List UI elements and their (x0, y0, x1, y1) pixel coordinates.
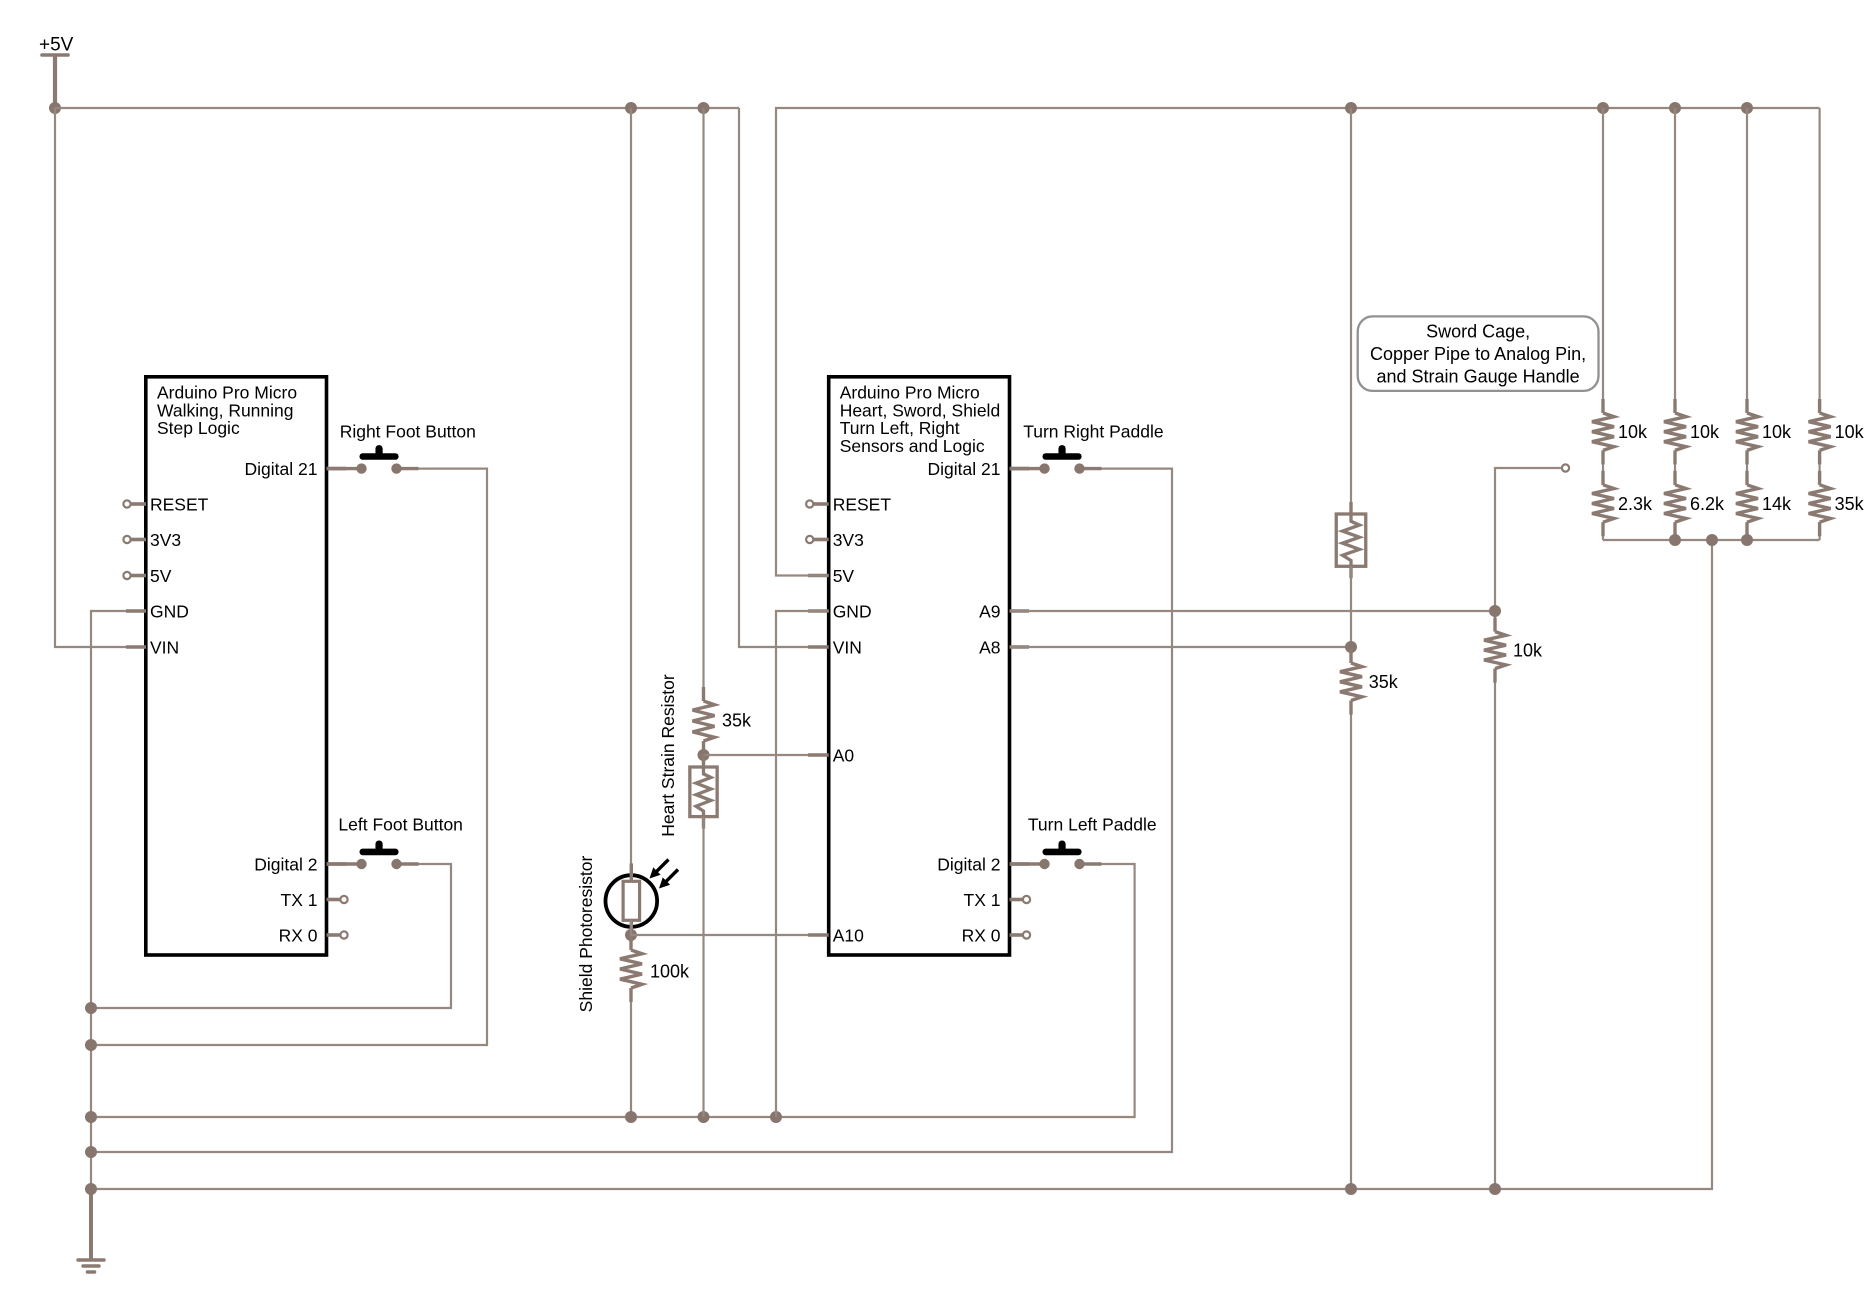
svg-text:RX 0: RX 0 (279, 925, 318, 945)
svg-text:Copper Pipe to Analog Pin,: Copper Pipe to Analog Pin, (1370, 344, 1586, 364)
svg-text:3V3: 3V3 (150, 530, 181, 550)
svg-text:A0: A0 (833, 745, 855, 765)
svg-text:5V: 5V (833, 566, 855, 586)
svg-text:35k: 35k (1369, 672, 1399, 692)
svg-text:+5V: +5V (39, 35, 74, 56)
svg-text:A8: A8 (979, 637, 1000, 657)
svg-text:and Strain Gauge Handle: and Strain Gauge Handle (1377, 366, 1580, 386)
svg-text:10k: 10k (1835, 422, 1865, 442)
svg-text:A10: A10 (833, 925, 864, 945)
svg-text:Heart Strain Resistor: Heart Strain Resistor (658, 674, 678, 837)
svg-text:Digital 2: Digital 2 (937, 854, 1000, 874)
svg-text:RESET: RESET (150, 494, 209, 514)
svg-text:Left Foot Button: Left Foot Button (338, 814, 463, 834)
svg-text:VIN: VIN (150, 637, 179, 657)
svg-text:10k: 10k (1513, 640, 1543, 660)
svg-text:RESET: RESET (833, 494, 892, 514)
svg-text:Sensors and Logic: Sensors and Logic (840, 436, 985, 456)
svg-text:RX 0: RX 0 (962, 925, 1001, 945)
svg-text:GND: GND (833, 601, 872, 621)
svg-text:GND: GND (150, 601, 189, 621)
svg-text:100k: 100k (650, 961, 690, 981)
svg-text:10k: 10k (1762, 422, 1792, 442)
svg-text:Shield Photoresistor: Shield Photoresistor (576, 856, 596, 1013)
svg-text:Digital 21: Digital 21 (245, 459, 318, 479)
svg-text:VIN: VIN (833, 637, 862, 657)
svg-text:Step Logic: Step Logic (157, 418, 240, 438)
svg-text:Turn Right Paddle: Turn Right Paddle (1023, 421, 1163, 441)
svg-text:A9: A9 (979, 601, 1000, 621)
svg-text:Digital 2: Digital 2 (254, 854, 317, 874)
svg-text:TX 1: TX 1 (964, 890, 1001, 910)
svg-text:Sword Cage,: Sword Cage, (1426, 322, 1530, 342)
svg-text:14k: 14k (1762, 494, 1792, 514)
svg-text:TX 1: TX 1 (281, 890, 318, 910)
svg-text:35k: 35k (722, 711, 752, 731)
svg-text:Turn Left Paddle: Turn Left Paddle (1028, 814, 1157, 834)
svg-text:6.2k: 6.2k (1690, 494, 1725, 514)
svg-text:10k: 10k (1618, 422, 1648, 442)
svg-text:2.3k: 2.3k (1618, 494, 1653, 514)
svg-text:10k: 10k (1690, 422, 1720, 442)
svg-text:35k: 35k (1835, 494, 1865, 514)
svg-text:3V3: 3V3 (833, 530, 864, 550)
svg-text:Right Foot Button: Right Foot Button (340, 421, 476, 441)
svg-text:5V: 5V (150, 566, 172, 586)
svg-text:Digital 21: Digital 21 (928, 459, 1001, 479)
